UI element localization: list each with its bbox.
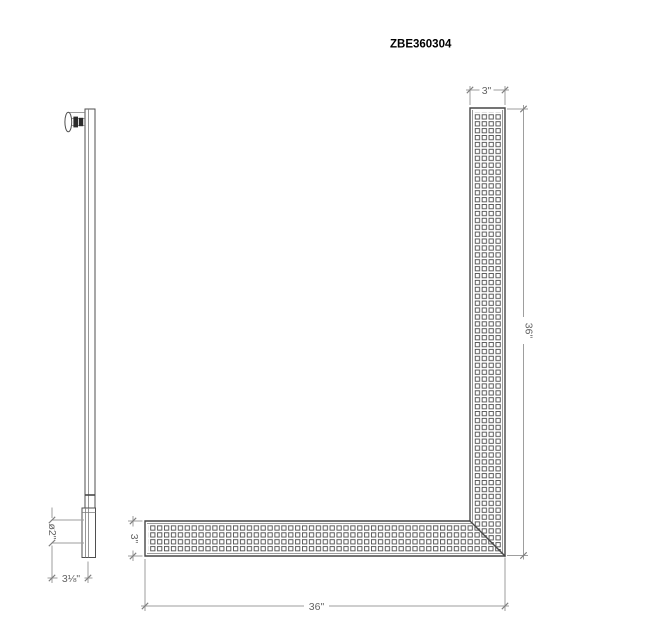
perforation-pattern-vertical-arm [474, 113, 502, 553]
bolt-nut [79, 118, 83, 126]
dimension-label-flange-height: 3" [128, 534, 140, 544]
dimension-top-width: 3" [466, 85, 509, 105]
perforation-pattern-horizontal-arm [149, 525, 502, 553]
dimension-hole-diameter: ø2" [46, 508, 84, 584]
dimension-label-bottom-width: 36" [309, 601, 325, 613]
technical-drawing-canvas: ZBE360304 3" 36" [0, 0, 645, 625]
dimension-bottom-width: 36" [141, 558, 509, 613]
side-view [65, 109, 96, 558]
part-number-title: ZBE360304 [390, 39, 452, 51]
sheet-edge-offset-lines [147, 110, 503, 554]
l-bracket-outline [145, 108, 505, 556]
side-view-strip [85, 109, 95, 508]
front-view [145, 108, 505, 556]
dimension-right-height: 36" [507, 105, 535, 560]
bolt-fastener [65, 112, 85, 132]
extension-lines [145, 558, 505, 612]
dimension-label-base-depth: 3⅛" [62, 573, 81, 585]
drawing-sheet: ZBE360304 3" 36" [0, 0, 645, 625]
side-view-base-thickness-lines [82, 508, 96, 558]
dimension-base-depth: 3⅛" [48, 562, 93, 585]
dimension-label-right-height: 36" [523, 323, 535, 339]
dimension-flange-height: 3" [128, 516, 143, 561]
dimension-label-top-width: 3" [482, 85, 492, 97]
dimension-label-hole-diameter: ø2" [46, 524, 58, 540]
bolt-washer [73, 117, 78, 128]
bolt-head [65, 112, 72, 132]
